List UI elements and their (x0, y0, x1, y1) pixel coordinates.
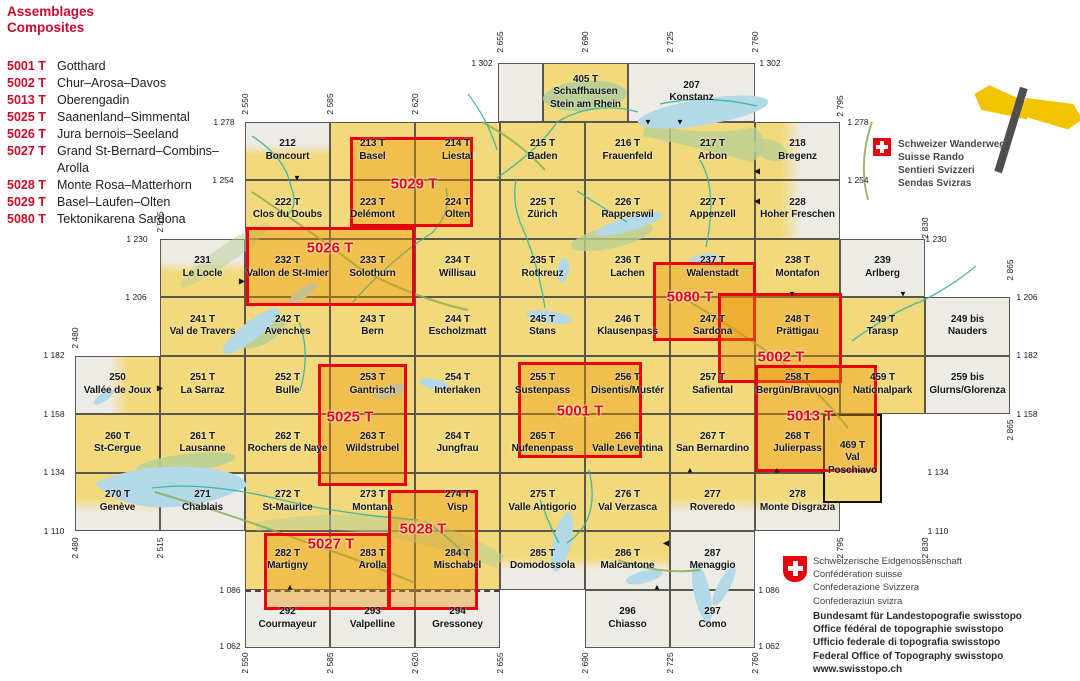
grid-coordinate-label: 1 158 (1016, 409, 1037, 419)
grid-coordinate-label: 2 690 (580, 652, 590, 673)
grid-coordinate-label: 1 158 (43, 409, 64, 419)
grid-coordinate-label: 2 585 (325, 93, 335, 114)
grid-coordinate-label: 2 550 (240, 93, 250, 114)
legend-item: 5029 TBasel–Laufen–Olten (7, 194, 219, 211)
map-tile-216T (585, 122, 670, 181)
map-tile-217T (670, 122, 755, 181)
composite-label-5027T: 5027 T (308, 536, 355, 553)
map-tile-276T (585, 473, 670, 532)
grid-marker-icon: ◀ (663, 539, 669, 548)
grid-coordinate-label: 1 206 (125, 292, 146, 302)
grid-coordinate-label: 2 725 (665, 31, 675, 52)
federal-office-text-line: Ufficio federale di topografia swisstopo (813, 636, 1022, 649)
legend-item: 5028 TMonte Rosa–Matterhorn (7, 177, 219, 194)
legend-item-code: 5029 T (7, 194, 57, 211)
map-tile-249T (840, 297, 925, 356)
grid-coordinate-label: 1 230 (126, 234, 147, 244)
grid-coordinate-label: 1 062 (219, 641, 240, 651)
grid-marker-icon: ▶ (157, 384, 163, 393)
legend-item: 5080 TTektonikarena Sardona (7, 211, 219, 228)
legend-item-code-spacer (7, 160, 57, 177)
grid-coordinate-label: 1 182 (1016, 350, 1037, 360)
map-tile-238T (755, 239, 840, 298)
grid-marker-icon: ▼ (676, 118, 684, 127)
map-tile-405-margin (498, 63, 543, 122)
map-tile-245T (500, 297, 585, 356)
composite-label-5001T: 5001 T (557, 403, 604, 420)
federal-office-text-line: Federal Office of Topography swisstopo (813, 650, 1022, 663)
grid-coordinate-label: 1 086 (758, 585, 779, 595)
map-tile-234T (415, 239, 500, 298)
grid-coordinate-label: 2 585 (325, 652, 335, 673)
composite-label-5026T: 5026 T (307, 240, 354, 257)
grid-coordinate-label: 2 690 (580, 31, 590, 52)
federal-office-text: Bundesamt für Landestopografie swisstopo… (813, 610, 1022, 663)
legend-item-name: Basel–Laufen–Olten (57, 194, 170, 211)
map-tile-259bis (925, 356, 1010, 415)
grid-marker-icon: ▲ (286, 583, 294, 592)
grid-coordinate-label: 2 760 (750, 652, 760, 673)
page: Assemblages Composites 5001 TGotthard500… (0, 0, 1080, 681)
legend-item-name: Jura bernois–Seeland (57, 126, 179, 143)
confederation-text-line: Schweizerische Eidgenossenschaft (813, 555, 962, 568)
map-tile-207 (628, 63, 755, 122)
map-tile-212 (245, 122, 330, 181)
grid-coordinate-label: 1 278 (847, 117, 868, 127)
legend-item-name: Oberengadin (57, 92, 129, 109)
map-tile-277 (670, 473, 755, 532)
grid-coordinate-label: 2 620 (410, 652, 420, 673)
composite-label-5080T: 5080 T (667, 289, 714, 306)
map-tile-249bis (925, 297, 1010, 356)
grid-coordinate-label: 2 480 (70, 537, 80, 558)
composite-label-5028T: 5028 T (400, 521, 447, 538)
grid-coordinate-label: 1 134 (43, 467, 64, 477)
legend-item: 5001 TGotthard (7, 58, 219, 75)
grid-marker-icon: ▲ (686, 466, 694, 475)
legend-item: 5025 TSaanenland–Simmental (7, 109, 219, 126)
grid-coordinate-label: 1 302 (759, 58, 780, 68)
hiking-signpost-icon (955, 80, 1080, 180)
map-tile-296 (585, 590, 670, 649)
composite-label-5013T: 5013 T (787, 408, 834, 425)
legend-item-name: Grand St-Bernard–Combins– (57, 143, 219, 160)
grid-marker-icon: ▶ (239, 277, 245, 286)
grid-coordinate-label: 1 134 (927, 467, 948, 477)
map-tile-228 (755, 180, 840, 239)
confederation-text-line: Confederazione Svizzera (813, 581, 962, 594)
legend-item-name: Gotthard (57, 58, 106, 75)
composite-label-5025T: 5025 T (327, 409, 374, 426)
map-tile-287 (670, 531, 755, 590)
map-tile-267T (670, 414, 755, 473)
legend-title-line2: Composites (7, 20, 219, 36)
grid-marker-icon: ▼ (788, 290, 796, 299)
composite-label-5002T: 5002 T (758, 349, 805, 366)
map-tile-218 (755, 122, 840, 181)
legend-title-line1: Assemblages (7, 4, 219, 20)
map-tile-270T (75, 473, 160, 532)
map-tile-271 (160, 473, 245, 532)
map-tile-239 (840, 239, 925, 298)
map-tile-244T (415, 297, 500, 356)
legend-item: 5026 TJura bernois–Seeland (7, 126, 219, 143)
grid-coordinate-label: 1 302 (471, 58, 492, 68)
map-tile-241T (160, 297, 245, 356)
grid-coordinate-label: 1 206 (1016, 292, 1037, 302)
legend-item-name: Arolla (57, 160, 89, 177)
map-tile-215T (500, 122, 585, 181)
signpost-arrow-right (1021, 94, 1080, 132)
grid-marker-icon: ▼ (644, 118, 652, 127)
legend-item: 5013 TOberengadin (7, 92, 219, 109)
map-tile-251T (160, 356, 245, 415)
grid-coordinate-label: 2 655 (495, 31, 505, 52)
swiss-shield-icon (783, 556, 807, 582)
map-tile-286T (585, 531, 670, 590)
map-tile-225T (500, 180, 585, 239)
grid-coordinate-label: 2 515 (155, 537, 165, 558)
confederation-text-line: Confederaziun svizra (813, 595, 962, 608)
swisstopo-url-link[interactable]: www.swisstopo.ch (813, 664, 902, 675)
grid-coordinate-label: 1 086 (219, 585, 240, 595)
grid-coordinate-label: 2 865 (1005, 259, 1015, 280)
legend-item-code: 5026 T (7, 126, 57, 143)
legend-item-name: Tektonikarena Sardona (57, 211, 186, 228)
legend-item-code: 5027 T (7, 143, 57, 160)
grid-marker-icon: ▼ (293, 174, 301, 183)
map-tile-261T (160, 414, 245, 473)
confederation-text-line: Confédération suisse (813, 568, 962, 581)
map-tile-235T (500, 239, 585, 298)
composite-label-5029T: 5029 T (391, 176, 438, 193)
grid-marker-icon: ◀ (754, 167, 760, 176)
grid-coordinate-label: 1 182 (43, 350, 64, 360)
legend: Assemblages Composites 5001 TGotthard500… (7, 4, 219, 228)
map-tile-297 (670, 590, 755, 649)
legend-item-continuation: Arolla (7, 160, 219, 177)
grid-coordinate-label: 2 655 (495, 652, 505, 673)
legend-item-code: 5001 T (7, 58, 57, 75)
map-tile-226T (585, 180, 670, 239)
federal-office-text-line: Bundesamt für Landestopografie swisstopo (813, 610, 1022, 623)
map-tile-405T (543, 63, 628, 122)
grid-coordinate-label: 1 230 (925, 234, 946, 244)
confederation-text: Schweizerische EidgenossenschaftConfédér… (813, 555, 962, 608)
grid-marker-icon: ◀ (754, 197, 760, 206)
legend-item: 5002 TChur–Arosa–Davos (7, 75, 219, 92)
grid-coordinate-label: 2 620 (410, 93, 420, 114)
grid-coordinate-label: 1 110 (44, 526, 65, 536)
legend-item: 5027 TGrand St-Bernard–Combins– (7, 143, 219, 160)
grid-marker-icon: ▲ (773, 466, 781, 475)
map-tile-285T (500, 531, 585, 590)
grid-marker-icon: ▼ (899, 290, 907, 299)
legend-item-name: Monte Rosa–Matterhorn (57, 177, 192, 194)
grid-coordinate-label: 2 480 (70, 327, 80, 348)
legend-items: 5001 TGotthard5002 TChur–Arosa–Davos5013… (7, 58, 219, 228)
map-tile-227T (670, 180, 755, 239)
legend-item-code: 5028 T (7, 177, 57, 194)
grid-coordinate-label: 2 550 (240, 652, 250, 673)
map-tile-260T (75, 414, 160, 473)
grid-marker-icon: ▲ (653, 583, 661, 592)
grid-coordinate-label: 2 725 (665, 652, 675, 673)
swiss-flag-icon (873, 138, 891, 156)
map-tile-264T (415, 414, 500, 473)
legend-item-code: 5013 T (7, 92, 57, 109)
legend-item-code: 5002 T (7, 75, 57, 92)
legend-item-code: 5080 T (7, 211, 57, 228)
grid-coordinate-label: 1 110 (928, 526, 949, 536)
grid-coordinate-label: 2 760 (750, 31, 760, 52)
grid-coordinate-label: 2 865 (1005, 419, 1015, 440)
map-tile-250 (75, 356, 160, 415)
federal-office-text-line: Office fédéral de topographie swisstopo (813, 623, 1022, 636)
map-tile-231 (160, 239, 245, 298)
grid-coordinate-label: 1 062 (758, 641, 779, 651)
confederation-logo (783, 556, 807, 582)
grid-coordinate-label: 1 254 (847, 175, 868, 185)
grid-coordinate-label: 2 795 (835, 95, 845, 116)
composite-box-5028T (388, 490, 478, 610)
map-tile-275T (500, 473, 585, 532)
legend-item-code: 5025 T (7, 109, 57, 126)
legend-item-name: Saanenland–Simmental (57, 109, 190, 126)
map-tile-254T (415, 356, 500, 415)
legend-item-name: Chur–Arosa–Davos (57, 75, 166, 92)
